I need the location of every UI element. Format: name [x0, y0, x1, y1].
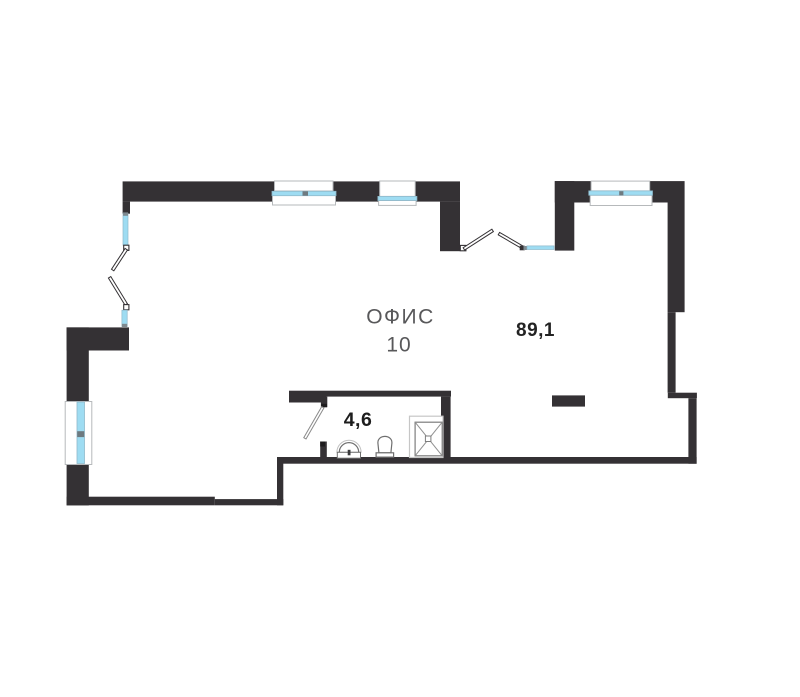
svg-text:10: 10	[386, 334, 411, 357]
svg-text:89,1: 89,1	[516, 320, 555, 341]
svg-text:ОФИС: ОФИС	[366, 306, 435, 329]
svg-text:4,6: 4,6	[344, 409, 373, 431]
